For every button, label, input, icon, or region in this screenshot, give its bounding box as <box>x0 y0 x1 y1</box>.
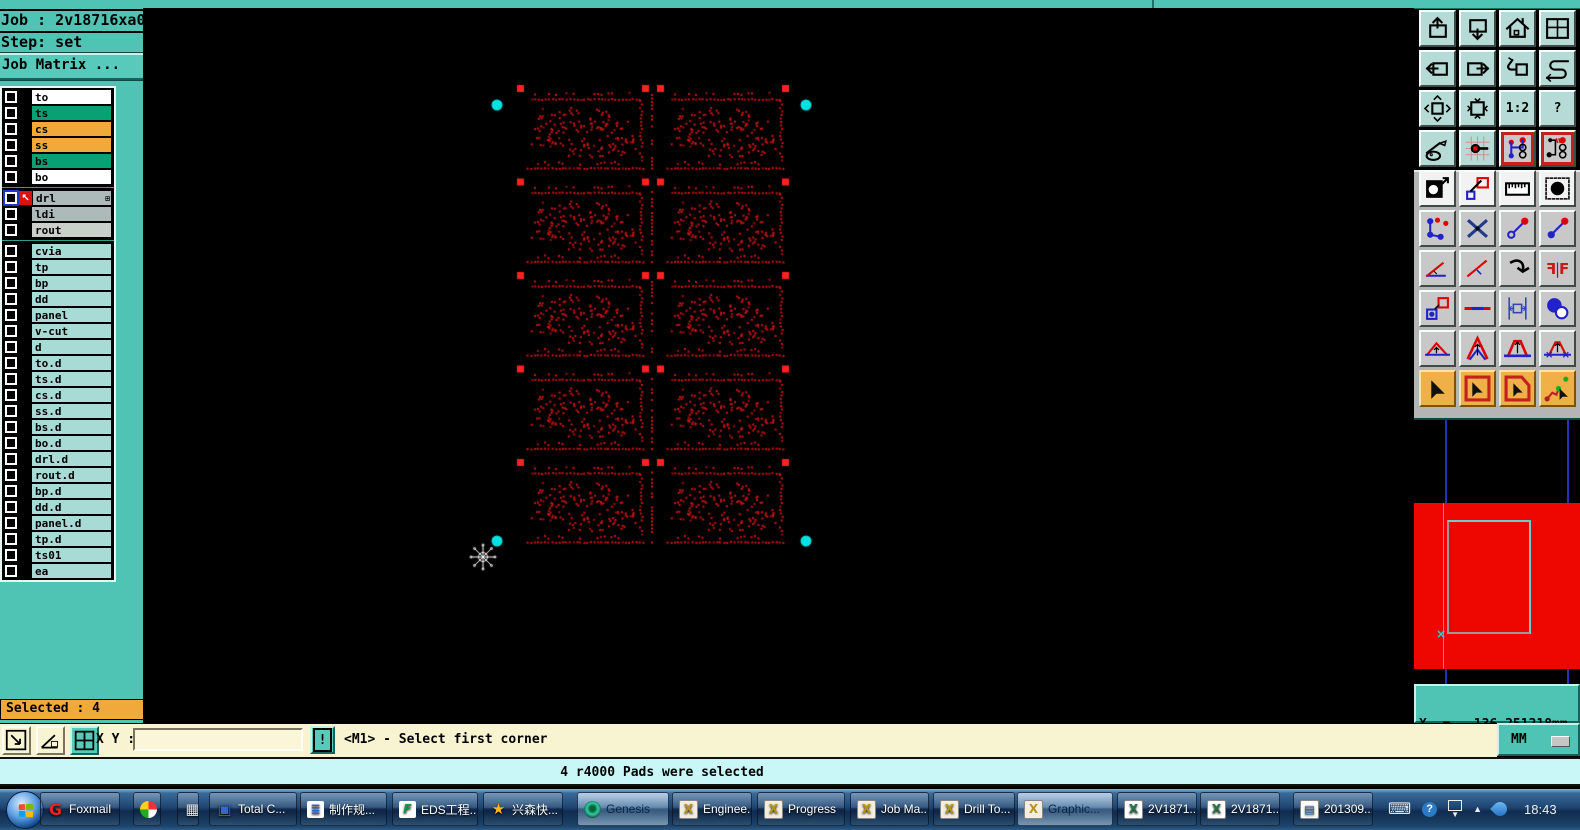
coordinate-readout: X = -136.251218mm Y = 204.520770mm <box>1414 684 1580 723</box>
layer-arrow-slot <box>17 499 31 515</box>
taskbar-item-label: Genesis <box>606 802 650 816</box>
taskbar-item-eds-[interactable]: FEDS工程... <box>392 792 478 826</box>
foxmail-icon: G <box>47 801 64 818</box>
layer-row-bs.d[interactable]: bs.d <box>2 419 114 435</box>
layer-name[interactable]: tp.d <box>31 531 112 547</box>
main-canvas[interactable] <box>143 8 1414 723</box>
layer-name[interactable]: cvia <box>31 243 112 259</box>
x-window-icon: X <box>857 800 876 819</box>
layer-name[interactable]: drl.d <box>31 451 112 467</box>
layer-arrow-slot <box>17 403 31 419</box>
diagonal-snap-button[interactable] <box>2 726 31 755</box>
layer-arrow-slot <box>17 451 31 467</box>
layer-row-bs[interactable]: bs <box>2 153 114 169</box>
invert-image-icon <box>1424 175 1451 202</box>
edit-shapes-icon <box>1464 175 1491 202</box>
taskbar-item-label: 2V1871... <box>1231 802 1280 816</box>
blue-app-tray-icon[interactable] <box>1490 799 1510 819</box>
layer-row-to[interactable]: to <box>2 89 114 105</box>
move-to-pad-icon <box>1504 215 1531 242</box>
layer-visibility-checkbox[interactable] <box>5 325 17 337</box>
layer-visibility-checkbox[interactable] <box>5 373 17 385</box>
taskbar-item--[interactable]: ★兴森快... <box>483 792 563 826</box>
layer-arrow-slot <box>17 153 31 169</box>
taskbar-item-label: Enginee... <box>703 802 752 816</box>
selected-count-badge: Selected : 4 <box>0 699 147 720</box>
zoom-in-center-icon <box>1464 95 1491 122</box>
layer-name[interactable]: ts01 <box>31 547 112 563</box>
zoom-out-fit-button[interactable] <box>1419 90 1456 127</box>
pinwheel-icon <box>140 801 157 818</box>
layer-name[interactable]: ss.d <box>31 403 112 419</box>
layer-arrow-slot <box>17 323 31 339</box>
taskbar-item-label: Progress <box>788 802 836 816</box>
layer-visibility-checkbox[interactable] <box>5 261 17 273</box>
layer-group-board: totscsssbsbo <box>2 89 114 185</box>
layer-row-ea[interactable]: ea <box>2 563 114 579</box>
layer-arrow-slot <box>17 206 31 222</box>
layer-row-d[interactable]: d <box>2 339 114 355</box>
grid-snap-button[interactable] <box>70 726 99 755</box>
layer-arrow-slot <box>17 222 31 238</box>
taskbar-item-genesis[interactable]: Genesis <box>577 792 669 826</box>
layer-visibility-checkbox[interactable] <box>5 107 17 119</box>
layer-row-drl.d[interactable]: drl.d <box>2 451 114 467</box>
layer-arrow-slot <box>17 243 31 259</box>
layer-group-docs: cviatpbpddpanelv-cutdto.dts.dcs.dss.dbs.… <box>2 243 114 579</box>
sidebar: Job : 2v18716xa0 Step: set Job Matrix ..… <box>0 8 143 723</box>
layer-arrow-slot <box>17 275 31 291</box>
calculator-icon: ▦ <box>184 801 199 818</box>
layer-visibility-checkbox[interactable] <box>5 501 17 513</box>
layer-arrow-slot <box>17 419 31 435</box>
x-window-icon: X <box>940 800 959 819</box>
triangle-peak-button[interactable] <box>1459 330 1496 367</box>
copy-to-pad-icon <box>1544 215 1571 242</box>
layer-visibility-checkbox[interactable] <box>5 224 17 236</box>
layer-name[interactable]: ts <box>31 105 112 121</box>
layer-visibility-checkbox[interactable] <box>5 155 17 167</box>
layer-name[interactable]: bp.d <box>31 483 112 499</box>
layer-name[interactable]: ts.d <box>31 371 112 387</box>
invert-image-button[interactable] <box>1419 170 1456 207</box>
layer-row-rout.d[interactable]: rout.d <box>2 467 114 483</box>
shift-left-button[interactable] <box>1419 50 1456 87</box>
taskbar: GFoxmail▦▣Total C...≣制作规...FEDS工程...★兴森快… <box>0 789 1580 830</box>
layer-group-separator <box>2 185 114 190</box>
layer-visibility-checkbox[interactable] <box>5 453 17 465</box>
select-single-icon <box>1424 375 1451 402</box>
layer-arrow-slot <box>17 387 31 403</box>
layer-visibility-checkbox[interactable] <box>5 341 17 353</box>
layer-row-tp[interactable]: tp <box>2 259 114 275</box>
net-highlight-b-button[interactable] <box>1539 130 1576 167</box>
word-icon: ▤ <box>1300 800 1319 819</box>
panel-preview-pane[interactable]: × <box>1414 418 1580 684</box>
layer-row-cvia[interactable]: cvia <box>2 243 114 259</box>
taskbar-item-201309-[interactable]: ▤201309... <box>1293 792 1373 826</box>
measure-angle-button[interactable] <box>1419 250 1456 287</box>
layer-visibility-checkbox[interactable] <box>5 469 17 481</box>
setup-tools-icon <box>1424 135 1451 162</box>
layer-row-to.d[interactable]: to.d <box>2 355 114 371</box>
taskbar-item-calculator[interactable]: ▦ <box>177 792 199 826</box>
layer-visibility-checkbox[interactable] <box>5 421 17 433</box>
diagonal-arrow-icon <box>5 729 28 752</box>
taskbar-item-label: EDS工程... <box>421 801 478 818</box>
undo-view-button[interactable] <box>1499 50 1536 87</box>
layer-arrow-slot <box>17 515 31 531</box>
origin-pad-icon <box>1464 135 1491 162</box>
delete-feature-button[interactable] <box>1459 210 1496 247</box>
help-button[interactable]: ? <box>1539 90 1576 127</box>
x-window-icon: X <box>679 800 698 819</box>
select-frame-icon <box>1464 375 1491 402</box>
taskbar-item-job-ma-[interactable]: XJob Ma... <box>850 792 929 826</box>
layer-visibility-checkbox[interactable] <box>5 208 17 220</box>
layer-matrix-icon: ⊞ <box>105 192 110 205</box>
layer-visibility-checkbox[interactable] <box>5 192 17 204</box>
preview-step-outline <box>1447 520 1531 634</box>
layer-row-cs.d[interactable]: cs.d <box>2 387 114 403</box>
work-layer-arrow-icon: ↖ <box>19 191 32 205</box>
zoom-previous-button[interactable] <box>1419 10 1456 47</box>
select-polygon-icon <box>1504 375 1531 402</box>
setup-tools-button[interactable] <box>1419 130 1456 167</box>
layer-group-drill: ↖drl⊞ldirout <box>2 190 114 238</box>
home-view-button[interactable] <box>1499 10 1536 47</box>
layer-arrow-slot <box>17 121 31 137</box>
triangle-span-button[interactable] <box>1539 330 1576 367</box>
layer-name[interactable]: dd.d <box>31 499 112 515</box>
taskbar-item-progress[interactable]: XProgress <box>757 792 845 826</box>
layer-name[interactable]: to <box>31 89 112 105</box>
show-hidden-icons-button[interactable]: ▲ <box>1473 804 1482 814</box>
taskbar-item-label: Job Ma... <box>881 802 929 816</box>
layer-arrow-slot <box>17 563 31 579</box>
layer-visibility-checkbox[interactable] <box>5 139 17 151</box>
layer-row-ts.d[interactable]: ts.d <box>2 371 114 387</box>
chain-nets-icon <box>1424 215 1451 242</box>
layer-name[interactable]: to.d <box>31 355 112 371</box>
genesis-icon <box>584 801 601 818</box>
layer-arrow-slot <box>17 339 31 355</box>
triangle-span-icon <box>1544 335 1571 362</box>
copy-layer-pad-button[interactable] <box>1419 290 1456 327</box>
select-net-button[interactable] <box>1539 370 1576 407</box>
layer-row-tp.d[interactable]: tp.d <box>2 531 114 547</box>
layer-row-panel.d[interactable]: panel.d <box>2 515 114 531</box>
system-tray: ⌨ ? ▼ ▲ 18:43 <box>1388 792 1557 826</box>
taskbar-item--[interactable]: ≣制作规... <box>300 792 387 826</box>
help-tray-icon[interactable]: ? <box>1422 802 1437 817</box>
chain-nets-button[interactable] <box>1419 210 1456 247</box>
layer-visibility-checkbox[interactable] <box>5 357 17 369</box>
prompt-status-text: <M1> - Select first corner <box>344 732 548 747</box>
taskbar-item-label: Graphic... <box>1048 802 1100 816</box>
measure-ruler-button[interactable] <box>1499 170 1536 207</box>
taskbar-item-label: Drill To... <box>964 802 1010 816</box>
measure-angle-icon <box>1424 255 1451 282</box>
select-net-icon <box>1544 375 1571 402</box>
genesis-cam-screen: { "palette": { "teal": "#4fc4b4", "teal_… <box>0 0 1580 830</box>
layer-visibility-checkbox[interactable] <box>5 549 17 561</box>
layer-arrow-slot <box>17 355 31 371</box>
measure-slope-icon <box>1464 255 1491 282</box>
layer-visibility-checkbox[interactable] <box>5 123 17 135</box>
units-slider[interactable] <box>1551 736 1570 747</box>
layer-arrow-slot <box>17 483 31 499</box>
layer-row-ss.d[interactable]: ss.d <box>2 403 114 419</box>
layer-visibility-checkbox[interactable] <box>5 277 17 289</box>
top-menu-divider <box>1152 0 1154 8</box>
x-window-icon: X <box>764 800 783 819</box>
layer-row-ts01[interactable]: ts01 <box>2 547 114 563</box>
taskbar-item-label: 制作规... <box>329 801 375 818</box>
layer-name[interactable]: bo.d <box>31 435 112 451</box>
edit-shapes-button[interactable] <box>1459 170 1496 207</box>
grid-icon <box>73 729 96 752</box>
layer-row-bp.d[interactable]: bp.d <box>2 483 114 499</box>
zoom-window-button[interactable] <box>1459 10 1496 47</box>
angle-icon <box>39 729 62 752</box>
layer-row-bo[interactable]: bo <box>2 169 114 185</box>
measure-slope-button[interactable] <box>1459 250 1496 287</box>
layer-visibility-checkbox[interactable] <box>5 245 17 257</box>
copy-to-pad-button[interactable] <box>1539 210 1576 247</box>
layer-row-v-cut[interactable]: v-cut <box>2 323 114 339</box>
layer-name[interactable]: v-cut <box>31 323 112 339</box>
mirror-ff-icon: F|F <box>1546 260 1570 278</box>
taskbar-item-2v1871-[interactable]: X2V1871... <box>1200 792 1280 826</box>
layer-visibility-checkbox[interactable] <box>5 533 17 545</box>
message-text: 4 r4000 Pads were selected <box>0 765 1324 780</box>
layer-arrow-slot <box>17 371 31 387</box>
layer-row-rout[interactable]: rout <box>2 222 114 238</box>
origin-pad-button[interactable] <box>1459 130 1496 167</box>
layer-name[interactable]: d <box>31 339 112 355</box>
layer-visibility-checkbox[interactable] <box>5 405 17 417</box>
floppy-icon: ▣ <box>216 801 233 818</box>
shift-right-button[interactable] <box>1459 50 1496 87</box>
alert-button[interactable]: ! <box>310 726 335 754</box>
layer-name[interactable]: ldi <box>31 206 112 222</box>
clock[interactable]: 18:43 <box>1524 802 1557 817</box>
command-bar: X Y : ! <M1> - Select first corner <box>0 723 1497 757</box>
home-view-icon <box>1504 15 1531 42</box>
move-to-pad-button[interactable] <box>1499 210 1536 247</box>
layer-arrow-slot <box>17 467 31 483</box>
taskbar-item-enginee-[interactable]: XEnginee... <box>672 792 752 826</box>
eds-f-icon: F <box>399 801 416 818</box>
layer-name[interactable]: cs <box>31 121 112 137</box>
layer-row-drl[interactable]: ↖drl⊞ <box>2 190 114 206</box>
x-window-icon: X <box>1024 800 1043 819</box>
taskbar-item-foxmail[interactable]: GFoxmail <box>40 792 120 826</box>
delete-feature-icon <box>1464 215 1491 242</box>
layer-visibility-checkbox[interactable] <box>5 485 17 497</box>
layer-arrow-slot <box>17 435 31 451</box>
net-highlight-a-button[interactable] <box>1499 130 1536 167</box>
layer-row-cs[interactable]: cs <box>2 121 114 137</box>
layer-arrow-slot <box>17 105 31 121</box>
taskbar-item-label: 兴森快... <box>512 801 558 818</box>
xy-input[interactable] <box>133 728 303 751</box>
layer-name[interactable]: bs.d <box>31 419 112 435</box>
layer-row-panel[interactable]: panel <box>2 307 114 323</box>
windows-logo-icon <box>18 803 32 817</box>
taskbar-item-label: Foxmail <box>69 802 111 816</box>
windows-xy-button[interactable] <box>1539 10 1576 47</box>
taskbar-item-label: 201309... <box>1324 802 1373 816</box>
select-pad-button[interactable] <box>1539 170 1576 207</box>
triangle-height-button[interactable] <box>1419 330 1456 367</box>
touch-circles-icon <box>1544 295 1571 322</box>
layer-visibility-checkbox[interactable] <box>5 293 17 305</box>
layer-arrow-slot <box>17 137 31 153</box>
layer-visibility-checkbox[interactable] <box>5 517 17 529</box>
measure-gap-icon <box>1504 295 1531 322</box>
triangle-base-icon <box>1504 335 1531 362</box>
serpentine-button[interactable] <box>1539 50 1576 87</box>
net-highlight-a-icon <box>1504 135 1531 162</box>
stretch-trace-button[interactable] <box>1459 290 1496 327</box>
triangle-base-button[interactable] <box>1499 330 1536 367</box>
layer-arrow-slot <box>17 307 31 323</box>
taskbar-item-pinwheel[interactable] <box>133 792 161 826</box>
start-button[interactable] <box>6 791 44 829</box>
alert-exclamation: ! <box>313 728 332 752</box>
layer-name[interactable]: tp <box>31 259 112 275</box>
select-single-button[interactable] <box>1419 370 1456 407</box>
shift-right-icon <box>1464 55 1491 82</box>
serpentine-icon <box>1544 55 1571 82</box>
mirror-feature-button[interactable]: F|F <box>1539 250 1576 287</box>
window-tray-icon[interactable]: ▼ <box>1448 800 1462 818</box>
measure-gap-button[interactable] <box>1499 290 1536 327</box>
layer-row-ldi[interactable]: ldi <box>2 206 114 222</box>
zoom-window-icon <box>1464 15 1491 42</box>
layer-group-separator <box>2 238 114 243</box>
layer-arrow-slot <box>17 259 31 275</box>
stretch-trace-icon <box>1464 295 1491 322</box>
layer-visibility-checkbox[interactable] <box>5 565 17 577</box>
layer-name[interactable]: panel.d <box>31 515 112 531</box>
taskbar-item-graphic-[interactable]: XGraphic... <box>1017 792 1113 826</box>
zoom-in-center-button[interactable] <box>1459 90 1496 127</box>
layer-arrow-slot <box>17 531 31 547</box>
units-label[interactable]: MM <box>1511 732 1527 747</box>
touch-circles-button[interactable] <box>1539 290 1576 327</box>
layer-arrow-slot <box>17 291 31 307</box>
job-matrix-button[interactable]: Job Matrix ... <box>0 53 148 80</box>
layer-name[interactable]: rout <box>31 222 112 238</box>
star-icon: ★ <box>490 801 507 818</box>
preview-origin-line <box>1443 503 1444 669</box>
layer-visibility-checkbox[interactable] <box>5 437 17 449</box>
preview-panel-area: × <box>1414 503 1580 669</box>
taskbar-item-drill-to-[interactable]: XDrill To... <box>933 792 1015 826</box>
layer-name[interactable]: dd <box>31 291 112 307</box>
units-segment: MM <box>1497 723 1580 756</box>
taskbar-item-label: 2V1871... <box>1148 802 1197 816</box>
excel-icon: X <box>1207 800 1226 819</box>
layer-list: totscsssbsbo ↖drl⊞ldirout cviatpbpddpane… <box>0 86 116 582</box>
keyboard-tray-icon[interactable]: ⌨ <box>1388 799 1411 819</box>
layer-row-ts[interactable]: ts <box>2 105 114 121</box>
excel-icon: X <box>1124 800 1143 819</box>
zoom-out-fit-icon <box>1424 95 1451 122</box>
layer-row-bo.d[interactable]: bo.d <box>2 435 114 451</box>
layer-arrow-slot <box>17 169 31 185</box>
taskbar-item-label: Total C... <box>238 802 285 816</box>
layer-name[interactable]: bp <box>31 275 112 291</box>
triangle-peak-icon <box>1464 335 1491 362</box>
layer-visibility-checkbox[interactable] <box>5 309 17 321</box>
layer-row-dd[interactable]: dd <box>2 291 114 307</box>
scale-1-2-button[interactable]: 1:2 <box>1499 90 1536 127</box>
shift-left-icon <box>1424 55 1451 82</box>
taskbar-item-total-c-[interactable]: ▣Total C... <box>209 792 297 826</box>
windows-xy-icon <box>1544 15 1571 42</box>
layer-name[interactable]: panel <box>31 307 112 323</box>
select-pad-icon <box>1544 175 1571 202</box>
angle-snap-button[interactable] <box>36 726 65 755</box>
preview-datum-marker: × <box>1436 627 1446 641</box>
net-highlight-b-icon <box>1544 135 1571 162</box>
layer-name[interactable]: ss <box>31 137 112 153</box>
layer-arrow-slot <box>17 89 31 105</box>
taskbar-item-2v1871-[interactable]: X2V1871... <box>1117 792 1197 826</box>
layer-visibility-checkbox[interactable] <box>5 91 17 103</box>
zoom-previous-icon <box>1424 15 1451 42</box>
layer-row-bp[interactable]: bp <box>2 275 114 291</box>
layer-row-dd.d[interactable]: dd.d <box>2 499 114 515</box>
layer-row-ss[interactable]: ss <box>2 137 114 153</box>
document-icon: ≣ <box>307 801 324 818</box>
layer-name[interactable]: cs.d <box>31 387 112 403</box>
measure-ruler-icon <box>1504 175 1531 202</box>
layer-visibility-checkbox[interactable] <box>5 389 17 401</box>
select-polygon-button[interactable] <box>1499 370 1536 407</box>
xy-label: X Y : <box>96 732 135 747</box>
rotate-feature-button[interactable] <box>1499 250 1536 287</box>
copy-layer-pad-icon <box>1424 295 1451 322</box>
rotate-feature-icon <box>1504 255 1531 282</box>
layer-name[interactable]: bs <box>31 153 112 169</box>
select-frame-button[interactable] <box>1459 370 1496 407</box>
right-toolbar: 1:2?F|F <box>1419 10 1576 407</box>
triangle-height-icon <box>1424 335 1451 362</box>
message-bar: 4 r4000 Pads were selected <box>0 757 1580 786</box>
layer-name[interactable]: rout.d <box>31 467 112 483</box>
layer-name[interactable]: bo <box>31 169 112 185</box>
layer-arrow-slot <box>17 547 31 563</box>
layer-visibility-checkbox[interactable] <box>5 171 17 183</box>
layer-name[interactable]: drl⊞ <box>32 190 112 206</box>
layer-name[interactable]: ea <box>31 563 112 579</box>
undo-view-icon <box>1504 55 1531 82</box>
